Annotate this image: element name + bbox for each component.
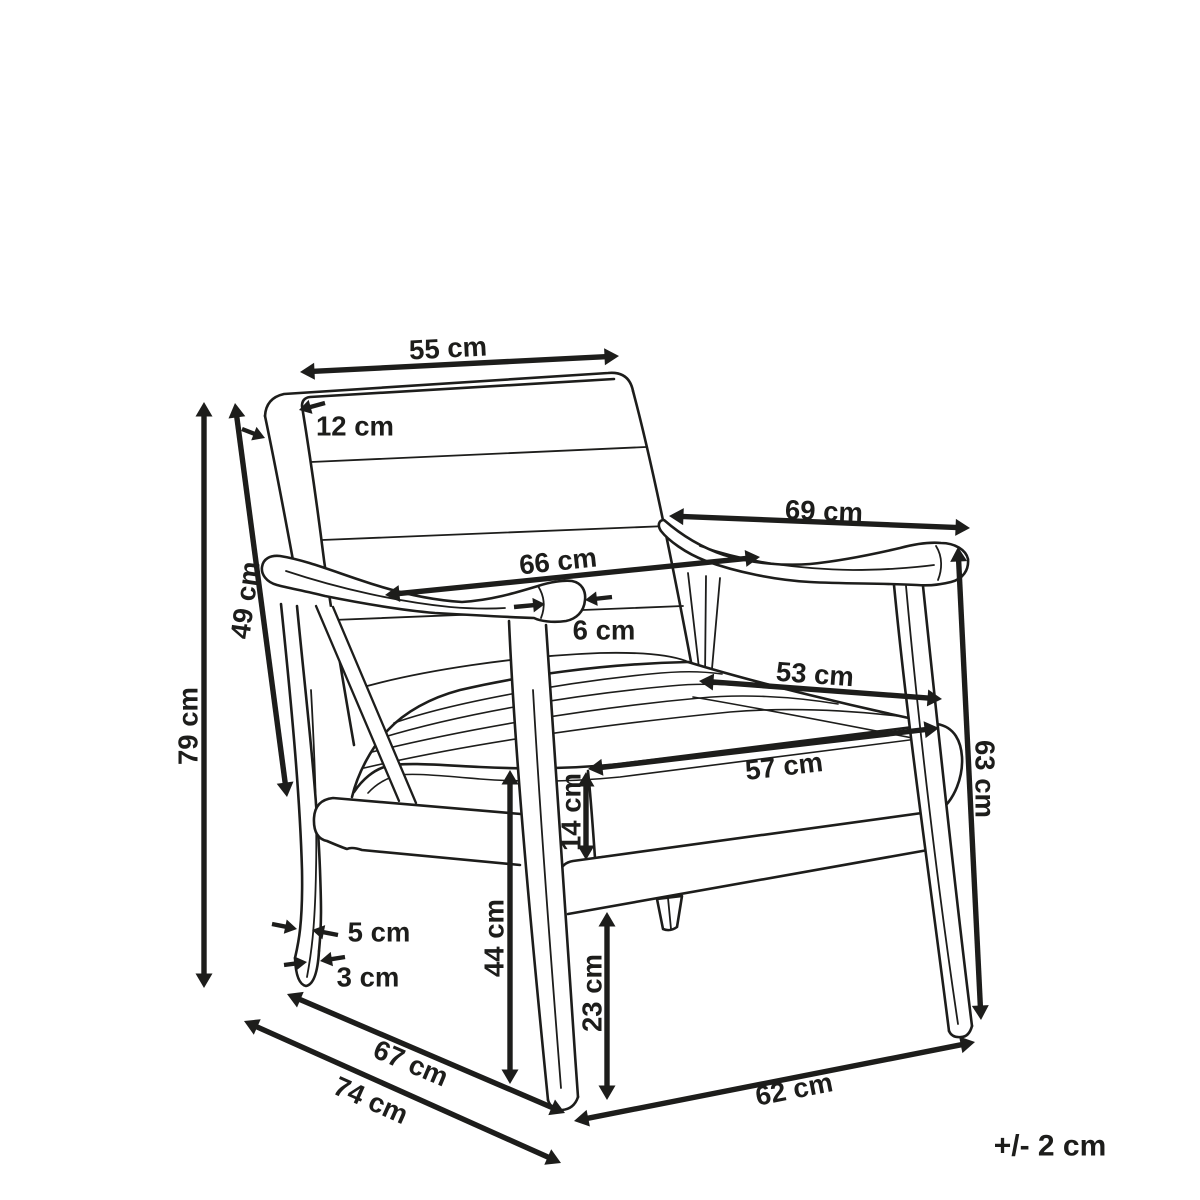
svg-text:69 cm: 69 cm bbox=[784, 494, 863, 528]
svg-text:+/- 2 cm: +/- 2 cm bbox=[994, 1130, 1107, 1163]
svg-text:55 cm: 55 cm bbox=[408, 330, 487, 365]
svg-text:44 cm: 44 cm bbox=[479, 899, 510, 977]
svg-text:6 cm: 6 cm bbox=[573, 615, 636, 646]
svg-text:63 cm: 63 cm bbox=[970, 740, 1001, 818]
svg-text:14 cm: 14 cm bbox=[556, 773, 587, 851]
svg-text:5 cm: 5 cm bbox=[348, 917, 411, 948]
svg-text:12 cm: 12 cm bbox=[316, 411, 394, 442]
svg-text:23 cm: 23 cm bbox=[577, 954, 608, 1032]
svg-text:79 cm: 79 cm bbox=[173, 687, 204, 765]
svg-text:3 cm: 3 cm bbox=[337, 962, 400, 993]
svg-text:53 cm: 53 cm bbox=[775, 656, 855, 693]
